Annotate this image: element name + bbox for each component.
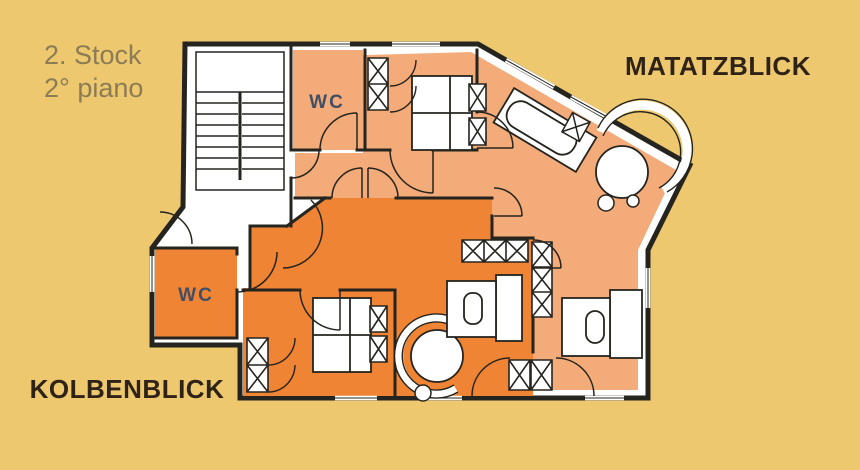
apartment-label-matatzblick: MATATZBLICK — [625, 51, 811, 81]
floor-plan: 2. Stock 2° piano MATATZBLICK KOLBENBLIC… — [0, 0, 860, 470]
staircase — [196, 52, 284, 190]
bed-icon — [313, 298, 371, 372]
floor-plan-page: 2. Stock 2° piano MATATZBLICK KOLBENBLIC… — [0, 0, 860, 470]
wardrobe-icon — [532, 242, 552, 317]
wardrobe-icon — [462, 240, 528, 262]
bed-icon — [412, 76, 472, 150]
apartment-label-kolbenblick: KOLBENBLICK — [30, 374, 225, 404]
desk-icon — [562, 290, 642, 358]
wc-label-lower: WC — [178, 285, 214, 306]
floor-label-line2: 2° piano — [44, 73, 143, 103]
wardrobe-icon — [247, 338, 268, 392]
wc-label-upper: WC — [309, 92, 345, 113]
wardrobe-icon — [368, 58, 388, 110]
floor-label-line1: 2. Stock — [44, 40, 142, 70]
desk-icon — [447, 275, 522, 341]
wardrobe-icon — [509, 360, 552, 390]
